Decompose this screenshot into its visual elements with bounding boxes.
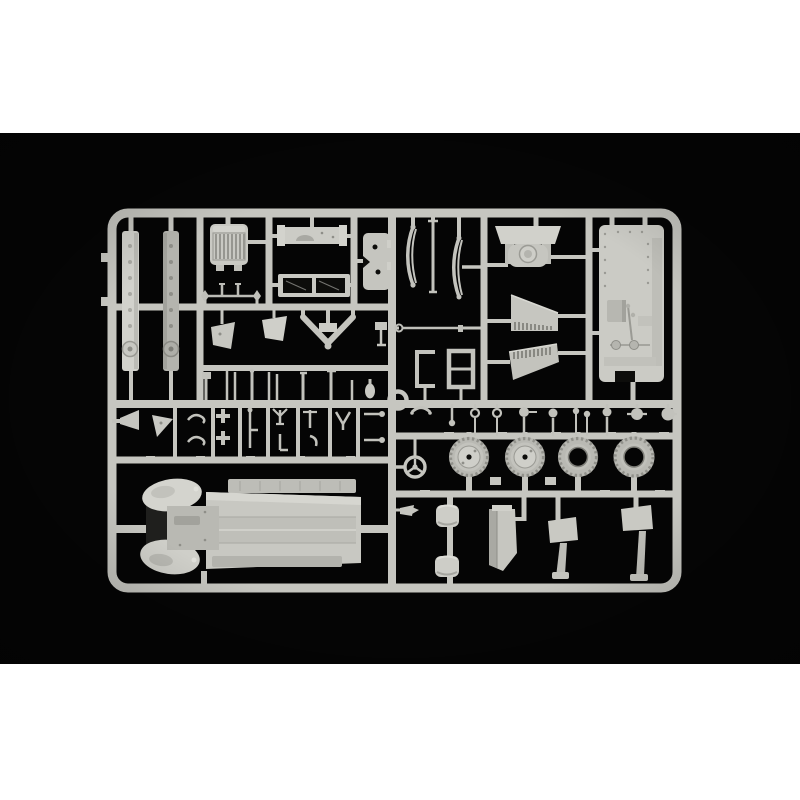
photo-vignette <box>0 133 800 664</box>
product-image <box>0 0 800 800</box>
product-photo <box>0 133 800 664</box>
product-photo-svg <box>0 0 800 800</box>
